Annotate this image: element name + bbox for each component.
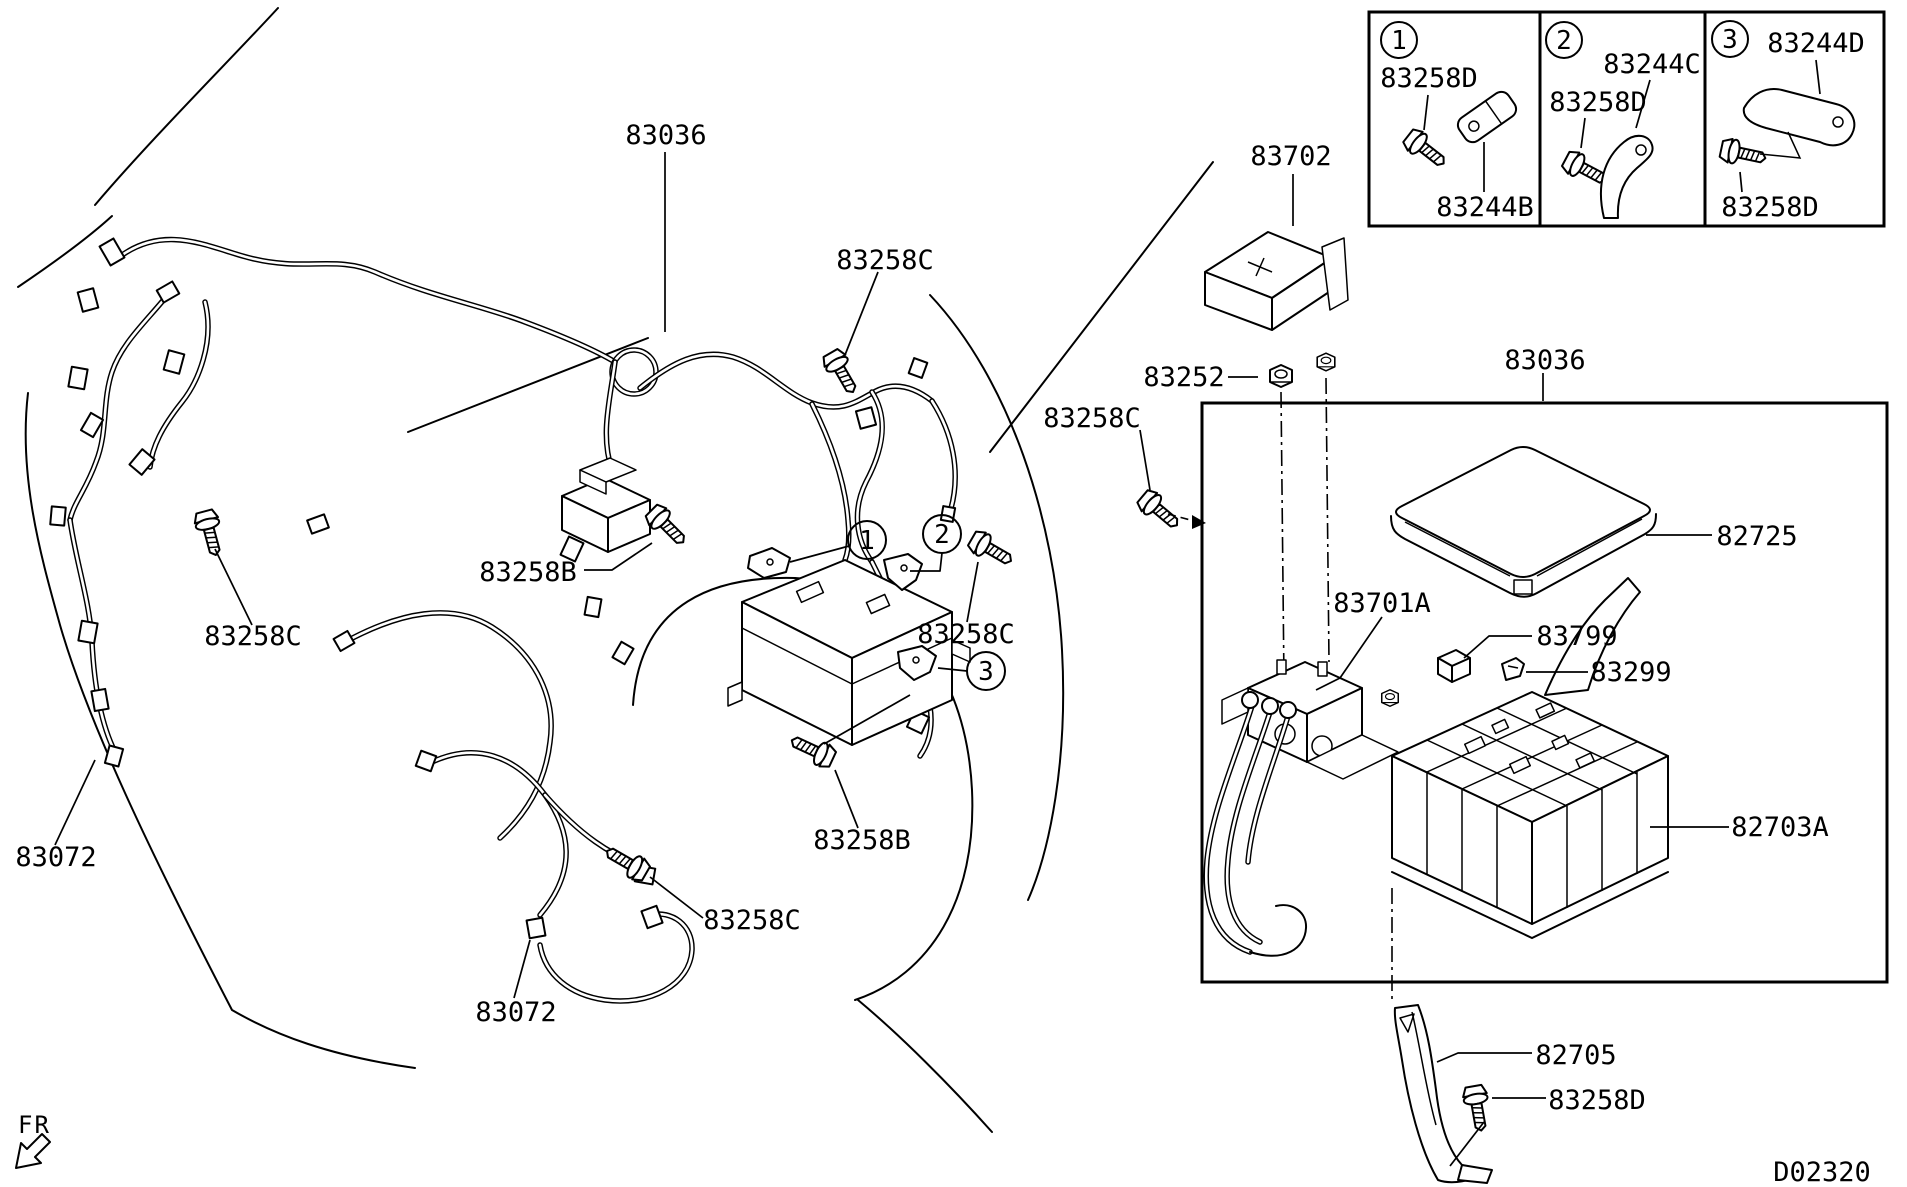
part-label-bolt-lower-b: 83258B	[813, 825, 911, 856]
part-label-bolt-left-b: 83258B	[479, 557, 577, 588]
part-label-support-bracket: 82705	[1535, 1040, 1616, 1071]
nut-83252-b	[1317, 353, 1335, 371]
front-arrow-icon	[16, 1134, 50, 1168]
part-label-fusebox-cover: 82725	[1716, 521, 1797, 552]
part-label-bracket-bolt-d: 83258D	[1548, 1085, 1646, 1116]
part-label-battery-cover: 83702	[1250, 141, 1331, 172]
callout-number-3: 3	[978, 657, 994, 687]
inset-3-number: 3	[1722, 25, 1738, 55]
part-label-bolt-mid-c: 83258C	[917, 619, 1015, 650]
part-label-fusebox: 82703A	[1731, 812, 1829, 843]
parts-diagram-canvas: 83036 83258C 83258B 83258C 83072 83258C …	[0, 0, 1907, 1187]
callout-number-2: 2	[934, 520, 950, 550]
part-label-harness-lower: 83072	[475, 997, 556, 1028]
part-label-bolt-left-c: 83258C	[204, 621, 302, 652]
inset-box-3: 3 83244D 83258D	[1705, 12, 1884, 226]
clip-83799-art	[1438, 650, 1470, 682]
part-label-bolt-lower-c: 83258C	[703, 905, 801, 936]
parts-diagram-page: 83036 83258C 83258B 83258C 83072 83258C …	[0, 0, 1907, 1187]
fusebox-cover-82725-art	[1391, 447, 1656, 597]
front-marker-label: FR	[18, 1111, 51, 1139]
front-direction-marker: FR	[16, 1111, 51, 1168]
part-label-bolt-top-c: 83258C	[836, 245, 934, 276]
part-label-relay-clip: 83799	[1536, 621, 1617, 652]
part-label-bolt-right-c: 83258C	[1043, 403, 1141, 434]
clip-83299-art	[1502, 658, 1524, 680]
part-label-terminal-block: 83701A	[1333, 588, 1431, 619]
fusebox-82703a-art	[1392, 578, 1668, 938]
inset-1-part-b: 83244B	[1436, 192, 1534, 223]
part-label-harness-clip: 83299	[1590, 657, 1671, 688]
car-body-outline	[18, 8, 1213, 1132]
inset-1-part-a: 83258D	[1380, 63, 1478, 94]
part-label-harness-left: 83072	[15, 842, 96, 873]
inset-3-part-b: 83258D	[1721, 192, 1819, 223]
inset-2-part-a: 83244C	[1603, 49, 1701, 80]
inset-1-number: 1	[1391, 26, 1407, 56]
part-label-harness-top: 83036	[625, 120, 706, 151]
inset-3-part-a: 83244D	[1767, 28, 1865, 59]
battery-cover-83702-art	[1205, 232, 1348, 330]
inset-box-1: 1 83258D 83244B	[1369, 12, 1540, 226]
nut-83252	[1270, 365, 1292, 387]
part-label-battery-nut: 83252	[1143, 362, 1224, 393]
callout-number-1: 1	[859, 526, 875, 556]
inset-2-part-b: 83258D	[1549, 87, 1647, 118]
inset-box-2: 2 83244C 83258D	[1540, 12, 1705, 226]
part-label-harness-inset: 83036	[1504, 345, 1585, 376]
inset-2-number: 2	[1556, 26, 1572, 56]
drawing-code: D02320	[1773, 1157, 1871, 1187]
relay-box-art	[562, 458, 970, 745]
